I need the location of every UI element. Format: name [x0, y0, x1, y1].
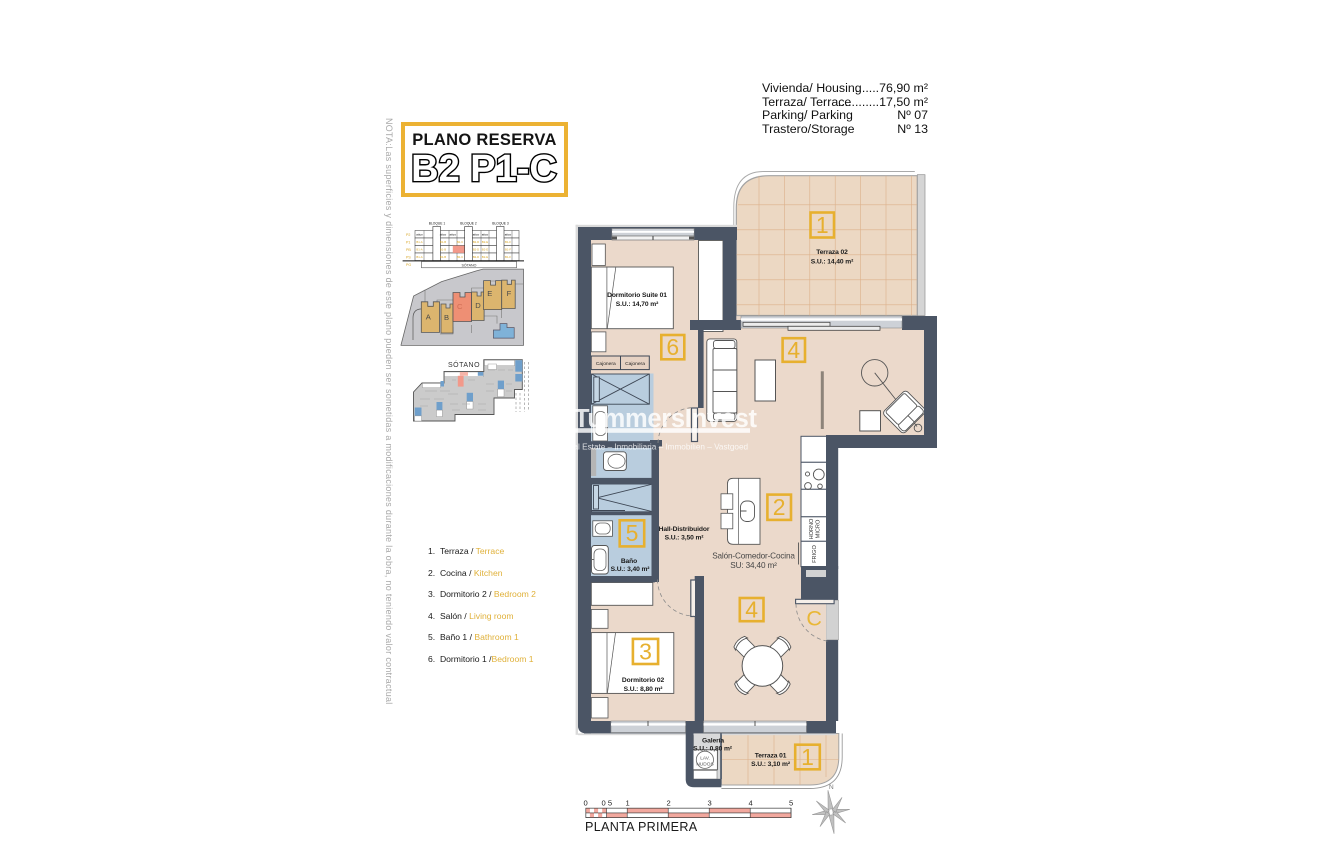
svg-text:MICRO: MICRO [816, 519, 822, 538]
svg-text:SÓTANO: SÓTANO [448, 360, 480, 369]
svg-text:B1-F: B1-F [505, 240, 511, 244]
svg-text:LAV.: LAV. [700, 756, 710, 762]
svg-text:2: 2 [667, 799, 671, 808]
svg-text:atico: atico [473, 233, 480, 237]
svg-text:S.U.: 0,80 m²: S.U.: 0,80 m² [693, 746, 733, 753]
svg-text:NUDOS: NUDOS [696, 762, 713, 768]
svg-text:PG: PG [406, 263, 411, 267]
svg-text:B1-B: B1-B [440, 240, 446, 244]
svg-text:2: 2 [773, 494, 786, 520]
svg-text:HORNO: HORNO [809, 518, 815, 539]
svg-text:Baño: Baño [621, 558, 637, 565]
svg-text:atico: atico [482, 233, 489, 237]
svg-text:6: 6 [666, 334, 679, 360]
svg-text:PS: PS [406, 256, 411, 260]
svg-text:D: D [475, 301, 481, 310]
svg-text:B2-D: B2-D [473, 255, 479, 259]
svg-text:B1-B: B1-B [440, 255, 446, 259]
svg-text:Hall-Distribuidor: Hall-Distribuidor [659, 526, 710, 533]
svg-text:BLOQUE 1: BLOQUE 1 [429, 222, 446, 226]
svg-text:Dormitorio Suite 01: Dormitorio Suite 01 [607, 292, 667, 299]
svg-text:SU: 34,40 m²: SU: 34,40 m² [730, 561, 777, 570]
svg-text:B: B [444, 313, 449, 322]
svg-text:atico: atico [440, 233, 447, 237]
svg-text:4: 4 [787, 337, 800, 363]
svg-text:B2-E: B2-E [482, 248, 488, 252]
svg-text:1: 1 [626, 799, 630, 808]
svg-text:Terraza 02: Terraza 02 [816, 249, 848, 256]
svg-text:FRIGO: FRIGO [812, 544, 818, 562]
svg-text:4: 4 [745, 597, 758, 623]
svg-text:B2-C: B2-C [457, 240, 463, 244]
svg-text:Terraza 01: Terraza 01 [755, 753, 787, 760]
svg-text:B2-D: B2-D [473, 240, 479, 244]
svg-text:BLOQUE 2: BLOQUE 2 [460, 222, 477, 226]
svg-text:B1-A: B1-A [416, 255, 422, 259]
svg-text:3: 3 [708, 799, 712, 808]
svg-text:S.U.: 3,50 m²: S.U.: 3,50 m² [665, 535, 705, 542]
svg-text:1: 1 [816, 212, 829, 238]
svg-text:S.U.: 3,10 m²: S.U.: 3,10 m² [751, 761, 791, 768]
svg-text:S.U.: 3,40 m²: S.U.: 3,40 m² [611, 566, 651, 573]
svg-text:atico: atico [505, 233, 512, 237]
svg-text:B1-B: B1-B [440, 248, 446, 252]
svg-text:0: 0 [584, 799, 588, 808]
svg-text:B2-C: B2-C [457, 255, 463, 259]
svg-text:Real Estate – Inmobiliaria – I: Real Estate – Inmobiliaria – Immobilien … [563, 443, 749, 452]
svg-text:0 5: 0 5 [602, 799, 613, 808]
svg-text:B2-D: B2-D [473, 248, 479, 252]
svg-text:B1-A: B1-A [416, 240, 422, 244]
svg-text:SÓTANO: SÓTANO [462, 262, 477, 267]
svg-text:Dormitorio 02: Dormitorio 02 [622, 677, 665, 684]
svg-text:3: 3 [639, 638, 652, 664]
svg-text:5: 5 [626, 520, 639, 546]
svg-text:C: C [457, 302, 463, 311]
svg-text:F: F [507, 289, 512, 298]
svg-text:S.U.: 14,70 m²: S.U.: 14,70 m² [616, 301, 659, 308]
svg-text:atico: atico [416, 233, 423, 237]
svg-text:Salón-Comedor-Cocina: Salón-Comedor-Cocina [712, 552, 795, 561]
svg-text:B1-A: B1-A [416, 248, 422, 252]
svg-text:C: C [806, 607, 822, 631]
svg-text:P1: P1 [406, 241, 410, 245]
svg-text:5: 5 [789, 799, 793, 808]
svg-text:E: E [487, 289, 492, 298]
svg-text:B2-E: B2-E [482, 240, 488, 244]
svg-text:Cajonera: Cajonera [625, 361, 645, 367]
svg-text:B2-E: B2-E [482, 255, 488, 259]
svg-text:S.U.: 8,80 m²: S.U.: 8,80 m² [624, 686, 664, 693]
svg-text:S.U.: 14,40 m²: S.U.: 14,40 m² [811, 259, 854, 266]
svg-text:Cajonera: Cajonera [596, 361, 616, 367]
svg-text:1: 1 [801, 744, 814, 770]
svg-text:B1-F: B1-F [505, 255, 511, 259]
svg-text:4: 4 [749, 799, 753, 808]
svg-text:atico: atico [450, 233, 457, 237]
svg-text:N: N [829, 784, 834, 791]
svg-text:Galería: Galería [702, 738, 724, 745]
svg-text:PB: PB [406, 248, 411, 252]
svg-text:P2: P2 [406, 233, 410, 237]
svg-text:BLOQUE 3: BLOQUE 3 [492, 222, 509, 226]
svg-text:B1-F: B1-F [505, 248, 511, 252]
